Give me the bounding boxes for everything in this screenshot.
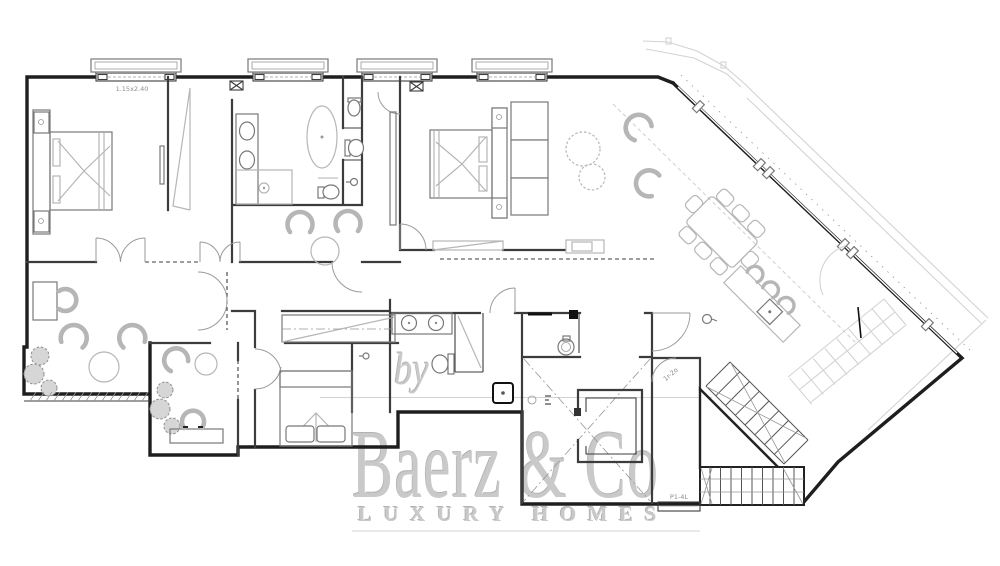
bedroom-3 — [280, 371, 352, 446]
dining-chair — [715, 187, 736, 208]
stair-flight-label: P1-4L — [670, 493, 689, 501]
dining-chair — [730, 203, 751, 224]
sink-icon — [240, 151, 255, 169]
stair-landing — [700, 389, 779, 468]
dressing-area — [173, 88, 190, 210]
interior-walls — [27, 77, 700, 503]
appliance-mark — [858, 307, 861, 338]
plant — [566, 132, 600, 166]
shaft-cross — [524, 359, 650, 501]
window-4 — [472, 59, 552, 82]
plant — [150, 399, 170, 419]
wardrobe — [511, 140, 548, 178]
dining-chair — [693, 240, 714, 261]
double-bed — [50, 132, 112, 210]
dining-chair — [684, 194, 705, 215]
elevator-core — [524, 310, 650, 501]
bar-stool — [762, 279, 782, 299]
plant — [579, 164, 605, 190]
armchair — [336, 211, 361, 231]
kitchen-island — [703, 257, 809, 342]
study-room — [150, 344, 223, 443]
armchair — [116, 322, 146, 348]
wall-mirror — [160, 146, 164, 184]
plant — [164, 418, 180, 434]
watermark-rules — [320, 398, 712, 532]
exterior-walls — [24, 75, 971, 504]
small-sink-icon — [348, 100, 360, 116]
lounge-chair — [632, 167, 660, 198]
master-bedroom — [33, 110, 164, 234]
plant — [24, 364, 44, 384]
armchair — [160, 344, 190, 372]
wardrobe — [511, 102, 548, 140]
window-size-label: 1.15x2.40 — [116, 85, 149, 93]
headboard — [280, 371, 352, 387]
nightstand — [34, 211, 49, 232]
wall-panel — [390, 112, 396, 225]
main-bathroom — [236, 98, 364, 204]
dining-table — [685, 195, 759, 269]
hall-seating — [288, 211, 361, 265]
dining-chair — [709, 256, 730, 277]
armchair — [288, 212, 313, 232]
bidet-icon — [323, 185, 339, 199]
wall-vents — [230, 81, 423, 91]
desk-chair — [182, 411, 204, 428]
round-table — [195, 353, 217, 375]
hall-wardrobe — [282, 315, 395, 342]
nightstand — [492, 198, 507, 218]
kettle-icon — [703, 315, 712, 324]
desk — [33, 282, 57, 320]
armchair — [59, 322, 89, 348]
round-table — [89, 352, 119, 382]
floorplan-drawing: 1.15x2.40 — [0, 0, 1000, 566]
dining-chair — [746, 219, 767, 240]
lounge-chair — [620, 110, 653, 142]
sink-icon — [240, 122, 255, 140]
utility-box — [569, 310, 578, 319]
bathroom-2 — [359, 313, 513, 403]
pillow — [53, 139, 60, 166]
round-table — [311, 237, 339, 265]
nightstand — [492, 108, 507, 128]
stair-run-label: 1r-2o — [662, 366, 680, 383]
shower-glass — [458, 316, 481, 368]
bedroom-2 — [390, 102, 604, 253]
bar-stool — [746, 263, 766, 283]
elevator-car — [578, 390, 642, 462]
bar-stool — [778, 294, 798, 314]
faucet-icon — [351, 179, 358, 186]
plant — [157, 382, 173, 398]
kitchen-cabinets — [788, 299, 906, 404]
toilet-icon — [432, 355, 448, 373]
staircase — [658, 362, 808, 511]
floorplan-canvas: by Baerz & Co LUXURY HOMES — [0, 0, 1000, 566]
window-2 — [248, 59, 328, 82]
sitting-room — [24, 282, 148, 401]
nightstand — [34, 112, 49, 133]
window-row: 1.15x2.40 — [91, 59, 552, 93]
living-area — [566, 110, 660, 198]
wardrobe — [511, 178, 548, 215]
elevator-door — [574, 408, 581, 416]
pillow — [53, 176, 60, 203]
dining-chair — [677, 225, 698, 246]
faucet-icon — [363, 353, 369, 359]
plant — [31, 347, 49, 365]
desk-chair — [59, 289, 76, 311]
pillow — [286, 426, 314, 442]
toilet-icon — [349, 140, 364, 157]
pillow — [317, 426, 345, 442]
terrace-door-swing — [820, 246, 845, 295]
window-3 — [357, 59, 437, 82]
